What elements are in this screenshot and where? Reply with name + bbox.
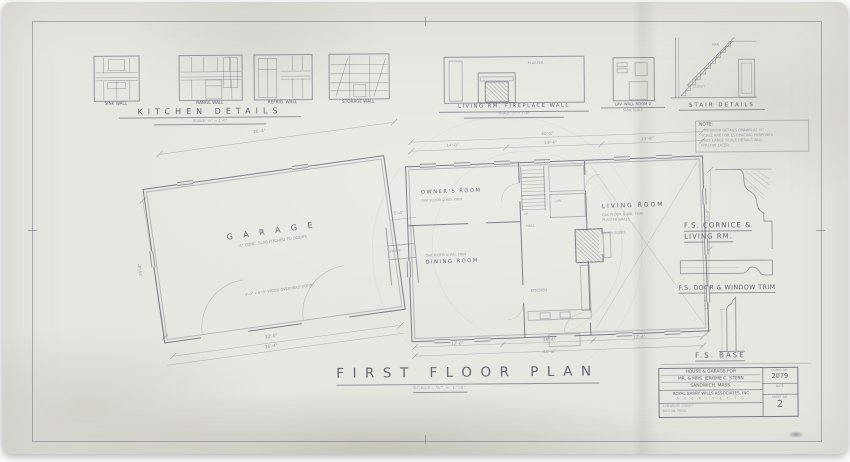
window-symbol	[534, 159, 550, 164]
dimension-label: 5'-4"	[394, 210, 404, 216]
dimension-label: 12'-8"	[641, 136, 654, 141]
window-symbol	[474, 337, 490, 342]
firm-address-line: BOSTON, MASS.	[663, 410, 687, 414]
paper-sheet: SINK WALL RANGE WALL REFRIG. WALL STORAG…	[2, 2, 848, 454]
dimension-label: 12'-4"	[633, 334, 646, 339]
window-symbol	[614, 156, 630, 161]
window-symbol	[616, 332, 632, 337]
project-line: SANDWICH, MASS.	[661, 383, 760, 389]
window-symbol	[706, 286, 711, 302]
house-outline: OWNER'S ROOM OAK FLOOR & WD. TRIM LIVING…	[405, 155, 709, 342]
window-symbol	[420, 163, 436, 168]
dimension-label: 14'-0"	[446, 143, 459, 148]
firm-subtitle: A R C H I T E C T S	[661, 397, 760, 402]
window-symbol	[664, 330, 680, 335]
window-symbol	[434, 339, 450, 344]
window-symbol	[407, 261, 412, 277]
dimension-label: 40'-8"	[541, 131, 554, 136]
window-symbol	[454, 162, 470, 167]
plan-title: FIRST FLOOR PLAN	[336, 364, 599, 385]
window-symbol	[656, 155, 672, 160]
scanned-blueprint-photo: SINK WALL RANGE WALL REFRIG. WALL STORAG…	[0, 0, 850, 456]
entry-stoop	[548, 333, 580, 347]
project-line: MR. & MRS. JEROME C. STERN	[661, 376, 760, 383]
project-line: HOUSE & GARAGE FOR	[661, 369, 760, 376]
room-label-lav: LAV.	[555, 200, 562, 204]
window-symbol	[704, 238, 709, 254]
dimension-label: 12'-0"	[451, 340, 464, 345]
dimension-label: 40'-8"	[543, 349, 556, 354]
drawing-content: SINK WALL RANGE WALL REFRIG. WALL STORAG…	[0, 0, 850, 458]
house-interior-linework	[406, 156, 708, 341]
window-symbol	[702, 188, 707, 204]
room-label-kitchen: KITCHEN	[531, 288, 548, 293]
room-label-hall: HALL	[526, 225, 535, 229]
date-label: DATE	[763, 385, 796, 389]
title-block: HOUSE & GARAGE FOR MR. & MRS. JEROME C. …	[658, 367, 798, 418]
comm-no-value: 2079	[763, 373, 796, 381]
stair-up-label: UP	[524, 213, 528, 217]
plan-title-scale: SCALE: ¼" = 1'-0"	[413, 386, 467, 393]
sheet-no-value: 2	[764, 400, 797, 411]
dimension-label: 13'-0"	[705, 209, 710, 222]
dimension-label: 13'-4"	[544, 140, 557, 145]
window-symbol	[494, 161, 510, 166]
